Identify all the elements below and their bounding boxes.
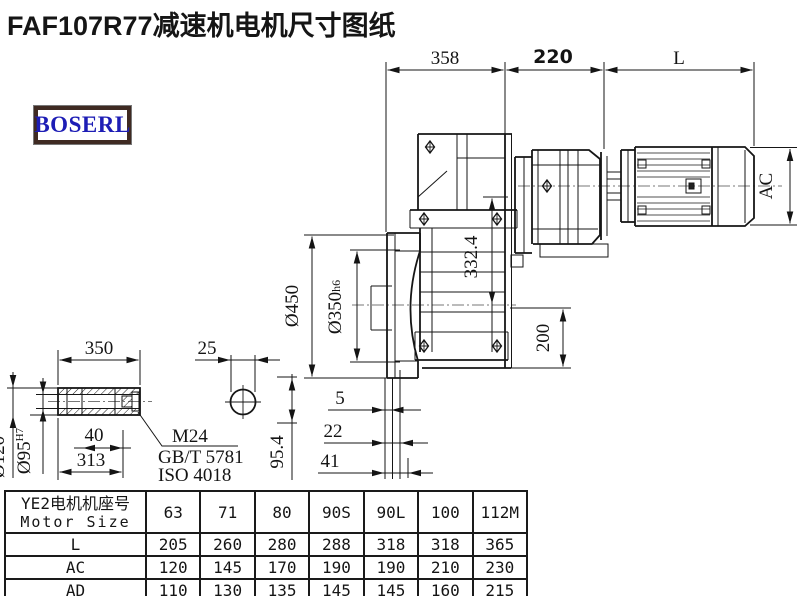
motor-size-label-en: Motor Size: [6, 513, 145, 531]
dim-AC: AC: [756, 173, 777, 199]
dim-220: 220: [533, 46, 573, 68]
row-label-cell: L: [5, 533, 146, 556]
value-cell: 280: [255, 533, 309, 556]
frame-size-cell: 63: [146, 491, 200, 533]
value-cell: 135: [255, 579, 309, 596]
r-stage: [515, 150, 621, 257]
value-cell: 130: [200, 579, 254, 596]
table-row: AD110130135145145160215: [5, 579, 527, 596]
value-cell: 230: [473, 556, 527, 579]
value-cell: 260: [200, 533, 254, 556]
dim-358: 358: [431, 48, 460, 69]
dim-332.4: 332.4: [461, 235, 482, 278]
standard-iso: ISO 4018: [158, 465, 231, 486]
frame-size-cell: 80: [255, 491, 309, 533]
table-header-motor-size: YE2电机机座号Motor Size: [5, 491, 146, 533]
dim-450: Ø450: [282, 285, 303, 327]
drawing-page: FAF107R77减速机电机尺寸图纸 BOSERL: [0, 0, 800, 596]
dim-95H7: Ø95H7: [14, 427, 35, 474]
output-flange: [371, 233, 420, 479]
dim-40: 40: [85, 425, 104, 446]
frame-size-cell: 100: [418, 491, 472, 533]
value-cell: 160: [418, 579, 472, 596]
row-label-cell: AC: [5, 556, 146, 579]
frame-size-cell: 112M: [473, 491, 527, 533]
value-cell: 318: [418, 533, 472, 556]
dim-L: L: [673, 48, 685, 69]
motor-size-label-cn: YE2电机机座号: [6, 494, 145, 513]
dim-120: Ø120: [0, 436, 9, 478]
value-cell: 170: [255, 556, 309, 579]
value-cell: 145: [309, 579, 363, 596]
value-cell: 318: [364, 533, 418, 556]
motor-outline: [621, 147, 754, 226]
value-cell: 288: [309, 533, 363, 556]
frame-size-cell: 90S: [309, 491, 363, 533]
dim-25: 25: [198, 338, 217, 359]
dim-shaft-350: 350: [85, 338, 114, 359]
value-cell: 120: [146, 556, 200, 579]
frame-size-cell: 71: [200, 491, 254, 533]
value-cell: 190: [309, 556, 363, 579]
dim-200: 200: [533, 324, 554, 353]
value-cell: 110: [146, 579, 200, 596]
motor-size-table: YE2电机机座号Motor Size63718090S90L100112ML20…: [4, 490, 528, 596]
technical-drawing: 358 220 L AC: [0, 0, 800, 492]
table-row: AC120145170190190210230: [5, 556, 527, 579]
row-label-cell: AD: [5, 579, 146, 596]
dim-41: 41: [321, 451, 340, 472]
centerlines: [48, 186, 782, 402]
dim-350h6: Ø350h6: [325, 280, 346, 334]
thread-callout: M24: [172, 426, 208, 447]
value-cell: 145: [364, 579, 418, 596]
table-row: L205260280288318318365: [5, 533, 527, 556]
motor-fins: [637, 153, 710, 221]
table-header-row: YE2电机机座号Motor Size63718090S90L100112M: [5, 491, 527, 533]
flange-dims: [304, 235, 400, 378]
motor-size-table-body: YE2电机机座号Motor Size63718090S90L100112ML20…: [5, 491, 527, 596]
dim-5: 5: [335, 388, 345, 409]
value-cell: 190: [364, 556, 418, 579]
value-cell: 215: [473, 579, 527, 596]
value-cell: 365: [473, 533, 527, 556]
value-cell: 210: [418, 556, 472, 579]
frame-size-cell: 90L: [364, 491, 418, 533]
dim-95.4: 95.4: [267, 435, 288, 469]
value-cell: 205: [146, 533, 200, 556]
dim-22: 22: [324, 421, 343, 442]
value-cell: 145: [200, 556, 254, 579]
dim-313: 313: [77, 450, 106, 471]
